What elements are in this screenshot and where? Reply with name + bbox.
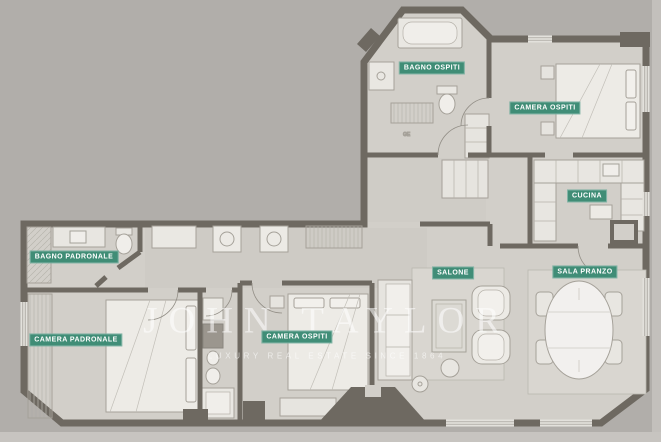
wall-pillar [243, 401, 265, 425]
sofa [378, 280, 412, 380]
dining-furniture [528, 270, 646, 394]
sink-master [53, 227, 105, 247]
bed-master [106, 300, 198, 412]
radiator [391, 103, 433, 123]
room-label-salone: SALONE [432, 266, 474, 279]
room-label-bagno-padronale: BAGNO PADRONALE [30, 250, 119, 263]
floor-plan-drawing: GE [0, 0, 661, 442]
window [528, 36, 552, 43]
floor-plan-image: GE [0, 0, 661, 442]
closet-text: GE [403, 132, 411, 138]
room-label-camera-ospiti-nord: CAMERA OSPITI [509, 101, 580, 114]
window [446, 420, 514, 427]
pantry-niche [612, 222, 636, 242]
wall-pillar [183, 409, 208, 425]
toilet-guest [437, 86, 457, 114]
window [540, 420, 592, 427]
wardrobe-master [28, 294, 52, 418]
living-room-furniture [378, 268, 510, 392]
room-label-cucina: CUCINA [567, 189, 607, 202]
floor-lamp [412, 376, 428, 392]
bathtub-guest [398, 18, 462, 48]
side-table [441, 359, 459, 377]
entrance-opening [365, 385, 381, 397]
window [643, 66, 650, 112]
room-label-camera-ospiti-sud: CAMERA OSPITI [261, 330, 332, 343]
sink-guest [369, 62, 394, 90]
room-label-camera-padronale: CAMERA PADRONALE [29, 333, 122, 346]
toilet-master [116, 228, 132, 254]
window [643, 278, 650, 336]
window [643, 192, 650, 216]
room-label-sala-pranzo: SALA PRANZO [552, 265, 617, 278]
corner-wall-block [620, 32, 650, 47]
coffee-table [432, 300, 466, 352]
window [21, 302, 28, 346]
room-label-bagno-ospiti: BAGNO OSPITI [399, 61, 465, 74]
kitchen-sink [603, 164, 619, 176]
